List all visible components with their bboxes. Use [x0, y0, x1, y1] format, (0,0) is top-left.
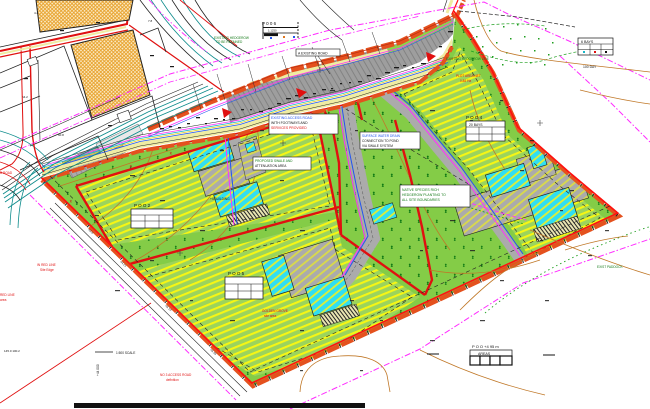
svg-text:SURFACE WATER DRAIN: SURFACE WATER DRAIN — [362, 134, 401, 138]
svg-text:EXISTING HEDGEROW LINE: EXISTING HEDGEROW LINE — [446, 57, 489, 61]
svg-text:P O O 5: P O O 5 — [228, 271, 245, 276]
svg-text:PLOT AREA NET: PLOT AREA NET — [456, 74, 481, 78]
svg-text:20 BAYS: 20 BAYS — [469, 123, 483, 127]
svg-text:CONNECTION TO POND: CONNECTION TO POND — [362, 139, 399, 143]
svg-text:EXIST PADDOCK: EXIST PADDOCK — [597, 265, 623, 269]
svg-text:P O O 4: P O O 4 — [466, 115, 483, 120]
svg-text:RED LINE: RED LINE — [0, 293, 15, 297]
svg-text:ALL SITE BOUNDARIES: ALL SITE BOUNDARIES — [402, 198, 440, 202]
svg-text:GOLDEN GROVE: GOLDEN GROVE — [262, 309, 288, 313]
svg-text:NO 3 ACCESS ROAD: NO 3 ACCESS ROAD — [160, 373, 192, 377]
svg-text:HEDGEROW PLANTING TO: HEDGEROW PLANTING TO — [402, 193, 446, 197]
svg-text:1:1250: 1:1250 — [268, 29, 277, 33]
svg-text:NATIVE SPECIES RICH: NATIVE SPECIES RICH — [402, 188, 439, 192]
svg-text:+4 BUILDING: +4 BUILDING — [210, 197, 230, 201]
svg-text:100 DAY: 100 DAY — [583, 65, 597, 69]
svg-text:A EXISTING ROAD: A EXISTING ROAD — [298, 52, 328, 56]
svg-text:7.8: 7.8 — [148, 19, 153, 23]
svg-text:P O O +4 95 m: P O O +4 95 m — [472, 344, 499, 349]
svg-text:EXISTING ACCESS ROAD: EXISTING ACCESS ROAD — [271, 116, 313, 120]
svg-text:60.8: 60.8 — [58, 133, 64, 137]
svg-text:site area: site area — [264, 314, 276, 318]
svg-text:AREAS: AREAS — [478, 352, 491, 356]
svg-text:64.2: 64.2 — [22, 95, 28, 99]
svg-text:SERVICES PROVIDED: SERVICES PROVIDED — [271, 126, 307, 130]
svg-text:TO BE RETAINED: TO BE RETAINED — [216, 40, 243, 44]
svg-text:area: area — [0, 298, 7, 302]
svg-text:IN RED LINE: IN RED LINE — [37, 263, 56, 267]
svg-text:+44 000: +44 000 — [96, 364, 100, 376]
svg-text:B ROAD: B ROAD — [0, 171, 13, 175]
svg-text:WITH FOOTWAYS AND: WITH FOOTWAYS AND — [271, 121, 308, 125]
svg-text:Site Edge: Site Edge — [40, 268, 54, 272]
svg-text:P 0 0 6: P 0 0 6 — [262, 21, 277, 26]
svg-text:ATTENUATION AREA: ATTENUATION AREA — [255, 164, 287, 168]
svg-text:145.0 100.2: 145.0 100.2 — [4, 349, 20, 353]
svg-text:6 BAYS: 6 BAYS — [581, 40, 594, 44]
svg-text:VIA SWALE SYSTEM: VIA SWALE SYSTEM — [362, 144, 393, 148]
svg-text:1:500 SCALE: 1:500 SCALE — [116, 351, 135, 355]
svg-text:PROPOSED SWALE AND: PROPOSED SWALE AND — [255, 159, 293, 163]
svg-text:definition: definition — [166, 378, 179, 382]
svg-text:P O O 2: P O O 2 — [134, 203, 151, 208]
svg-text:0.84 Ha: 0.84 Ha — [460, 79, 471, 83]
